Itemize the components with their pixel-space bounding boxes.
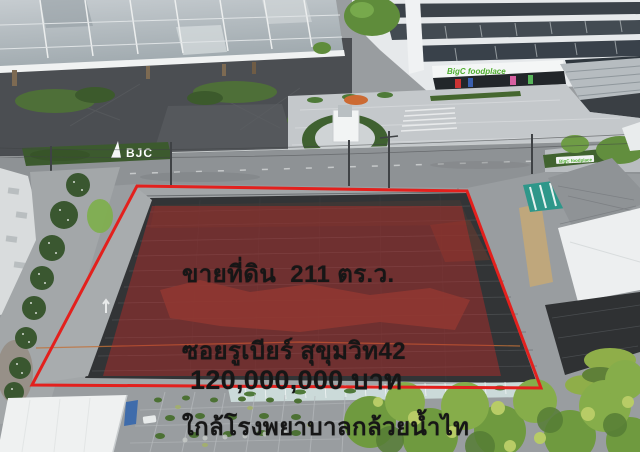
listing-title: ขายที่ดิน 211 ตร.ว. xyxy=(182,262,469,288)
flower-ring xyxy=(344,95,368,105)
listing-price: 120,000,000 บาท xyxy=(190,367,426,395)
bjc-sign: BJC xyxy=(126,146,153,160)
aerial-land-listing-photo: BigC foodplace xyxy=(0,0,640,452)
blue-tarp xyxy=(124,400,138,426)
listing-pricing: 120,000,000 บาท (568,720 บาท/ตร.ว) xyxy=(177,312,426,452)
